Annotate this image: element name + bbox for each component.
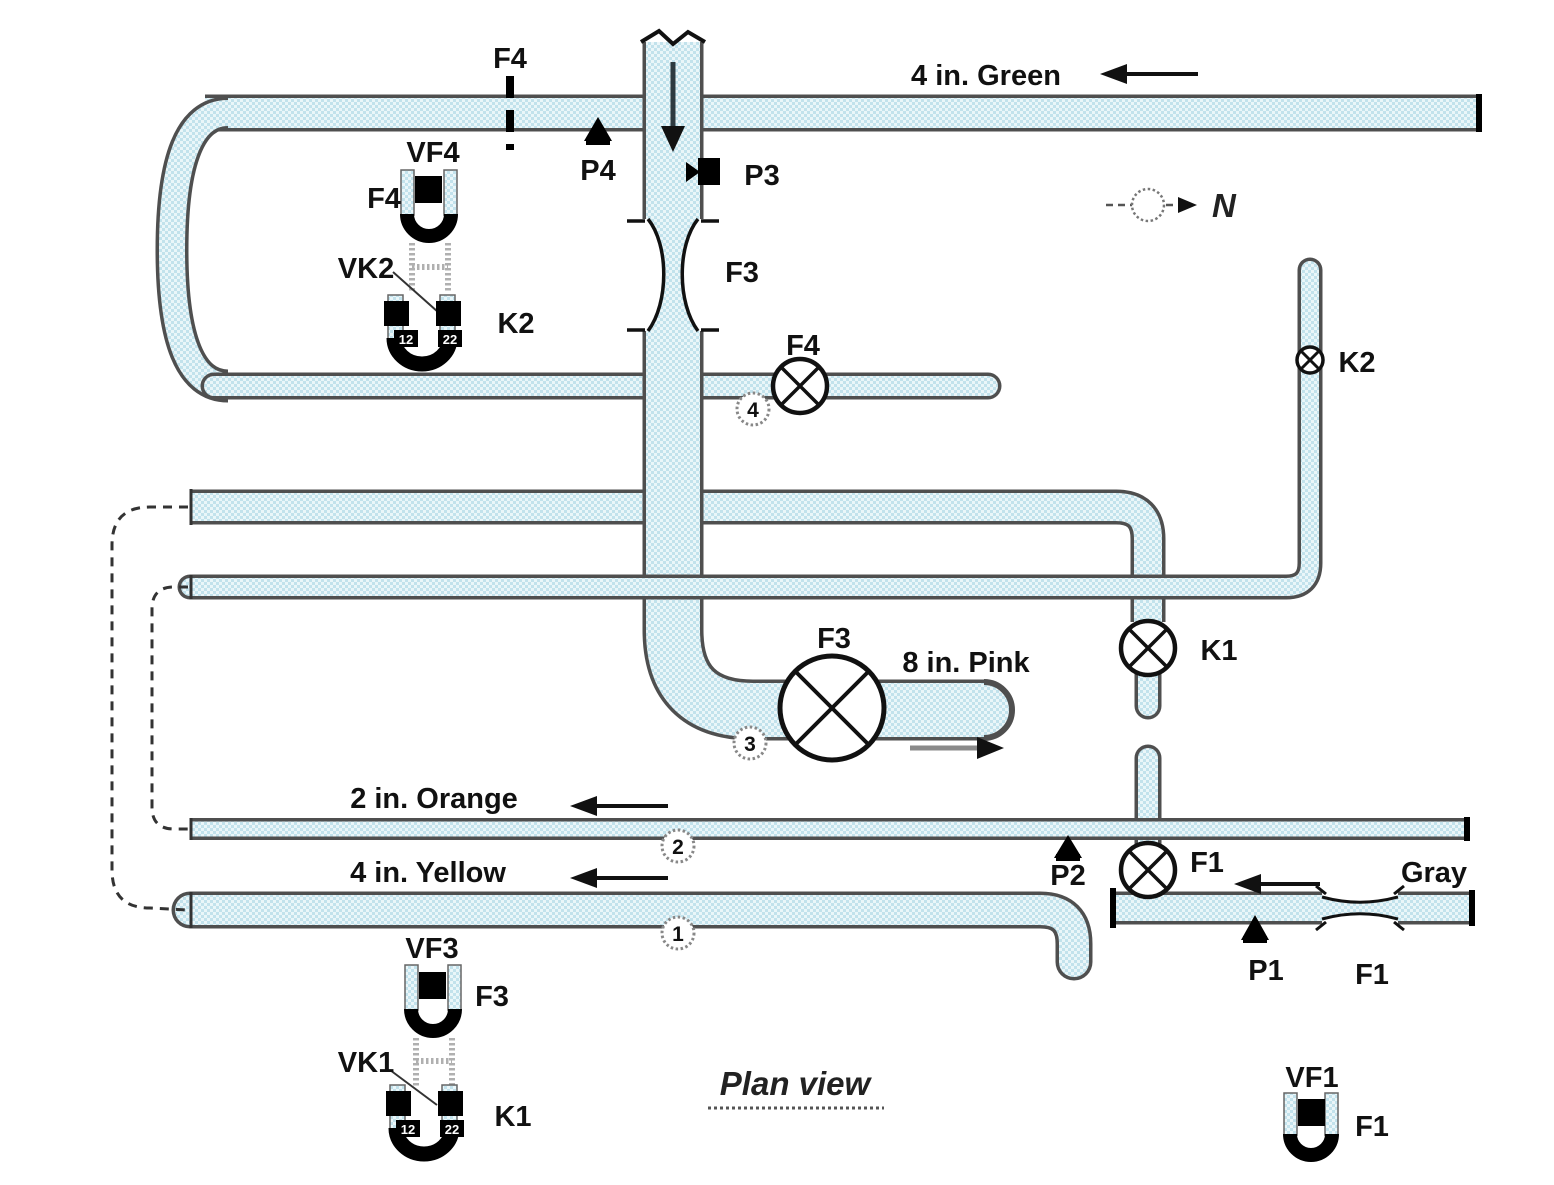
svg-text:3: 3 (744, 733, 756, 756)
svg-text:2: 2 (672, 836, 684, 859)
sensor-vf3 (405, 965, 461, 1031)
north-label: N (1212, 187, 1237, 224)
valve-k2 (1297, 347, 1323, 373)
label-gray-pipe: Gray (1401, 857, 1467, 889)
junction-1: 1 (662, 917, 694, 949)
diagram-title: Plan view (708, 1065, 884, 1108)
svg-text:12: 12 (401, 1122, 415, 1137)
north-compass: N (1106, 187, 1237, 224)
valve-f4 (773, 359, 827, 413)
sensor-k1: 12 22 (386, 1070, 464, 1154)
junction-2: 2 (662, 830, 694, 862)
pipe-yellow-line (190, 892, 1074, 962)
junction-3: 3 (734, 727, 766, 759)
flow-arrow-yellow (570, 868, 668, 888)
valve-k1 (1121, 621, 1175, 675)
label-f3-sensor: F3 (475, 981, 509, 1013)
compass-arrowhead (1178, 197, 1197, 213)
junction-4: 4 (737, 393, 769, 425)
label-orange-pipe: 2 in. Orange (350, 783, 518, 815)
pipe-gray-line (1113, 888, 1472, 928)
svg-text:1: 1 (672, 923, 684, 946)
svg-text:22: 22 (443, 332, 457, 347)
label-yellow-pipe: 4 in. Yellow (350, 857, 506, 889)
label-f1-sensor: F1 (1355, 1111, 1389, 1143)
compass-circle (1132, 189, 1164, 221)
sensor-vf1 (1284, 1093, 1338, 1155)
svg-text:4: 4 (747, 399, 759, 422)
flow-arrow-gray (1234, 874, 1320, 894)
flow-arrow-green (1100, 64, 1198, 84)
label-k2-sensor: K2 (497, 308, 534, 340)
sensor-k2: 12 22 (384, 272, 462, 364)
piping-plan-svg: N (0, 0, 1554, 1185)
label-f4-sensor: F4 (367, 183, 401, 215)
pipe-green-line (172, 94, 1480, 386)
label-k1-sensor: K1 (494, 1101, 531, 1133)
plan-view-diagram: N (0, 0, 1554, 1185)
coupling-hatch-top (412, 243, 448, 292)
label-f1-valve: F1 (1190, 847, 1224, 879)
label-vf1: VF1 (1285, 1062, 1338, 1094)
label-k2-valve: K2 (1338, 347, 1375, 379)
label-pink-pipe: 8 in. Pink (902, 647, 1030, 679)
label-k1-valve: K1 (1200, 635, 1237, 667)
pipe-orange-line (190, 817, 1467, 841)
coupling-hatch-bottom (416, 1038, 452, 1086)
label-vf4: VF4 (406, 137, 459, 169)
dashed-connector-outer (112, 507, 188, 910)
page-title: Plan view (720, 1065, 873, 1102)
label-f3-valve: F3 (817, 623, 851, 655)
label-vk2: VK2 (338, 253, 394, 285)
valve-f1 (1121, 843, 1175, 897)
label-p2: P2 (1050, 860, 1085, 892)
label-f3-venturi: F3 (725, 257, 759, 289)
pipe-break-mask (641, 22, 705, 44)
svg-text:12: 12 (399, 332, 413, 347)
label-vf3: VF3 (405, 933, 458, 965)
dashed-connector-inner (152, 587, 188, 829)
label-f4-orifice: F4 (493, 43, 527, 75)
flow-arrow-orange (570, 796, 668, 816)
svg-text:22: 22 (445, 1122, 459, 1137)
label-f4-valve: F4 (786, 330, 820, 362)
label-p1: P1 (1248, 955, 1283, 987)
label-green-pipe: 4 in. Green (911, 60, 1061, 92)
sensor-vf4 (401, 170, 457, 236)
label-vk1: VK1 (338, 1047, 394, 1079)
label-p4: P4 (580, 155, 615, 187)
label-p3: P3 (744, 160, 779, 192)
pink-pipe-end-cap (984, 682, 1012, 738)
valve-f3 (780, 656, 884, 760)
label-f1-venturi: F1 (1355, 959, 1389, 991)
